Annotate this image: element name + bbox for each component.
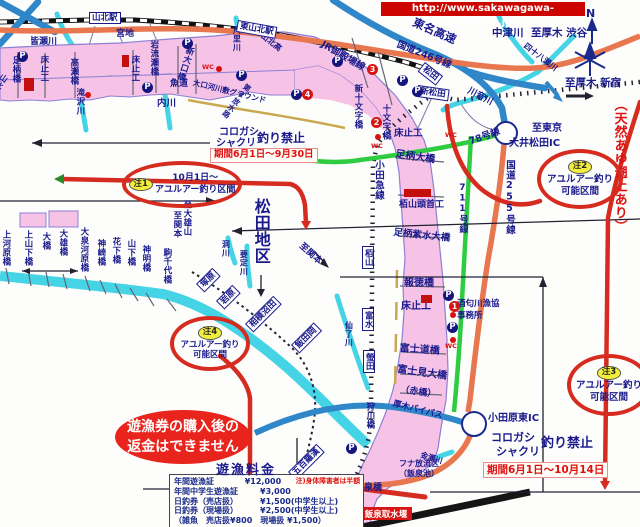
iizumi-intake-weir: 飯泉取水堰 <box>360 507 412 520</box>
refund-notice: 遊漁券の購入後の返金はできません <box>115 410 251 464</box>
kawaoto-river <box>443 36 574 110</box>
weir-mark <box>24 78 34 91</box>
map-label: 大雄橋 <box>58 229 67 256</box>
map-label: 神明橋 <box>141 245 150 272</box>
weir-mark <box>421 295 432 303</box>
fee-table-title: 遊漁料金 <box>216 459 276 478</box>
fee-row: 年間遊漁証¥12,000注)身体障害者は半額 <box>174 477 360 487</box>
map-label: 至関本 <box>172 211 181 238</box>
point-marker <box>216 66 222 72</box>
map-label: 皆瀬川 <box>30 38 57 47</box>
map-label: 711号線 <box>457 183 466 234</box>
map-label: 新十文字橋 <box>353 84 362 129</box>
map-label: 洞川 <box>221 240 229 257</box>
parking-icon: P <box>142 82 153 93</box>
map-label: 大井松田IC <box>509 139 560 150</box>
note-text: アユルアー釣り <box>576 380 640 392</box>
note-text: アユルアー釣り <box>547 174 613 186</box>
map-label: 要定川 <box>239 250 247 276</box>
note-pill: 注3 <box>597 366 621 379</box>
parking-icon: P <box>412 86 423 97</box>
map-label: シャクリ <box>496 446 540 458</box>
map-label: 滝沢川 <box>75 88 84 115</box>
map-label: 上山下橋 <box>23 230 32 266</box>
map-label: 狩川橋 <box>365 402 374 429</box>
map-label: N <box>586 8 595 20</box>
map-label: 事務所 <box>457 312 483 321</box>
map-label: 高瀬橋 <box>69 58 78 85</box>
riverside-patches <box>20 211 78 227</box>
fishing-map: 飯泉取水堰 http://www.sakawagawa-gyokyou.jp/ … <box>0 0 640 527</box>
point-marker <box>85 92 91 98</box>
parking-icon: P <box>346 443 357 454</box>
map-label: 岩流瀬橋 <box>149 40 158 76</box>
map-label: 宮地 <box>116 30 134 39</box>
parking-icon: P <box>291 89 302 100</box>
map-label: 釣り禁止 <box>257 132 305 145</box>
map-label: 大泉河原橋 <box>79 227 88 272</box>
map-label: コロガシ <box>219 128 259 139</box>
parking-icon: P <box>447 322 458 333</box>
point-marker <box>450 312 456 318</box>
url-banner[interactable]: http://www.sakawagawa-gyokyou.jp/ <box>381 2 585 16</box>
map-label: 酒匂川漁協 <box>457 300 500 309</box>
wc-label: WC <box>202 63 214 71</box>
note-pill: 注1 <box>129 178 153 191</box>
map-label: 釣り禁止 <box>541 437 593 451</box>
map-label: 床止工 <box>401 302 431 313</box>
wc-label: WC <box>445 342 457 350</box>
map-label: （飯泉池） <box>399 470 439 478</box>
note-text: アユルアー釣り区間 <box>155 185 235 196</box>
numbered-marker: 2 <box>371 117 382 128</box>
weir-mark <box>122 55 129 67</box>
fee-row: 年間中学生遊漁証¥3,000 <box>174 487 360 497</box>
numbered-marker: 4 <box>302 89 313 100</box>
station-box: 富水 <box>362 308 374 331</box>
parking-icon: P <box>443 290 454 301</box>
map-label: 山下橋 <box>126 239 135 266</box>
numbered-marker: 3 <box>367 64 378 75</box>
map-label: 大橋 <box>41 232 50 250</box>
parking-icon: P <box>182 38 193 49</box>
weir-mark <box>404 189 431 197</box>
fee-row: （雑魚 売店扱¥800 現場扱 ¥1,500） <box>174 516 360 526</box>
parking-icon: P <box>332 56 343 67</box>
parking-icon: P <box>17 51 28 62</box>
map-label: 駒千代橋 <box>162 248 171 284</box>
station-box: 山北駅 <box>89 12 121 24</box>
note-text: 10月1日～ <box>155 173 235 184</box>
map-label: 花下橋 <box>111 237 120 264</box>
point-marker <box>375 134 381 140</box>
station-box: 螢田 <box>363 350 375 373</box>
wc-label: WC <box>371 142 383 150</box>
map-label: 魚道 <box>170 80 188 89</box>
parking-icon: P <box>397 75 408 86</box>
odawara-higashi-ic <box>462 412 486 436</box>
note-text: 可能区間 <box>590 392 628 404</box>
note-pill: 注4 <box>198 326 222 339</box>
note-4: 注4アユルアー釣り可能区間 <box>170 316 250 371</box>
note-text: 可能区間 <box>561 186 599 198</box>
map-label: 仙了川 <box>344 321 352 347</box>
map-label: 栢山頭首工 <box>399 201 444 210</box>
map-label: 十文字橋 <box>381 104 390 140</box>
note-1: 注110月1日～アユルアー釣り区間 <box>122 161 242 208</box>
numbered-marker: 1 <box>449 301 460 312</box>
fee-table: 年間遊漁証¥12,000注)身体障害者は半額年間中学生遊漁証¥3,000日釣券（… <box>169 474 364 527</box>
map-label: コロガシ <box>491 432 535 444</box>
note-pill: 注2 <box>568 160 592 173</box>
map-label: 至厚木 新宿 <box>565 78 621 89</box>
fee-row: 日釣券（現場扱）¥2,500(中学生以上) <box>174 506 360 516</box>
map-label: 内川 <box>157 99 176 109</box>
period-box: 期間6月1日～10月14日 <box>483 462 608 478</box>
note-text: 可能区間 <box>193 350 227 361</box>
period-box: 期間6月1日～9月30日 <box>210 148 318 163</box>
map-label: 松田地区 <box>252 198 269 264</box>
note-text: 遊漁券の購入後の <box>127 417 239 437</box>
map-label: 小田原東IC <box>488 414 539 425</box>
map-label: 床止工 <box>394 129 423 139</box>
map-label: 神崎橋 <box>96 239 105 266</box>
point-marker <box>450 337 456 343</box>
station-box: 栢山 <box>362 246 374 269</box>
map-label: 上河原橋 <box>1 230 10 266</box>
parking-icon: P <box>236 70 247 81</box>
note-text: 返金はできません <box>127 437 239 457</box>
note-2: 注2アユルアー釣り可能区間 <box>537 149 623 209</box>
map-label: 小田急線 <box>373 160 383 200</box>
map-label: 報徳橋 <box>404 279 434 290</box>
fee-row: 日釣券（売店扱）¥1,500(中学生以上) <box>174 497 360 507</box>
map-label: 至東京 <box>532 124 562 135</box>
svg-text:飯泉取水堰: 飯泉取水堰 <box>364 509 408 520</box>
green-arrowhead <box>54 174 64 184</box>
map-label: 国道255号線 <box>504 160 514 235</box>
map-label: 至厚木 渋谷 <box>531 28 587 39</box>
map-label: 床止工 <box>39 55 48 82</box>
note-text: アユルアー釣り <box>181 340 240 351</box>
map-label: 床止工 <box>130 55 139 82</box>
wc-label: WC <box>445 131 457 139</box>
